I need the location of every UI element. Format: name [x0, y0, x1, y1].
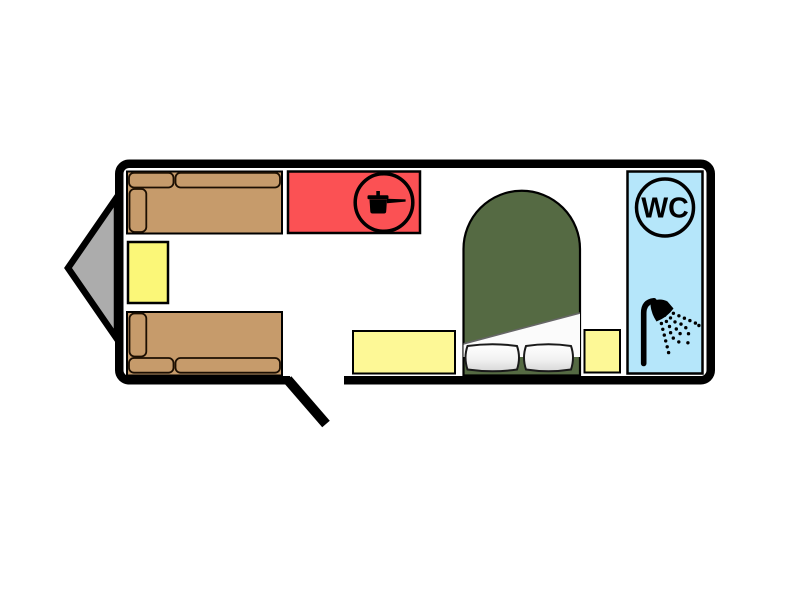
- svg-text:WC: WC: [641, 193, 688, 225]
